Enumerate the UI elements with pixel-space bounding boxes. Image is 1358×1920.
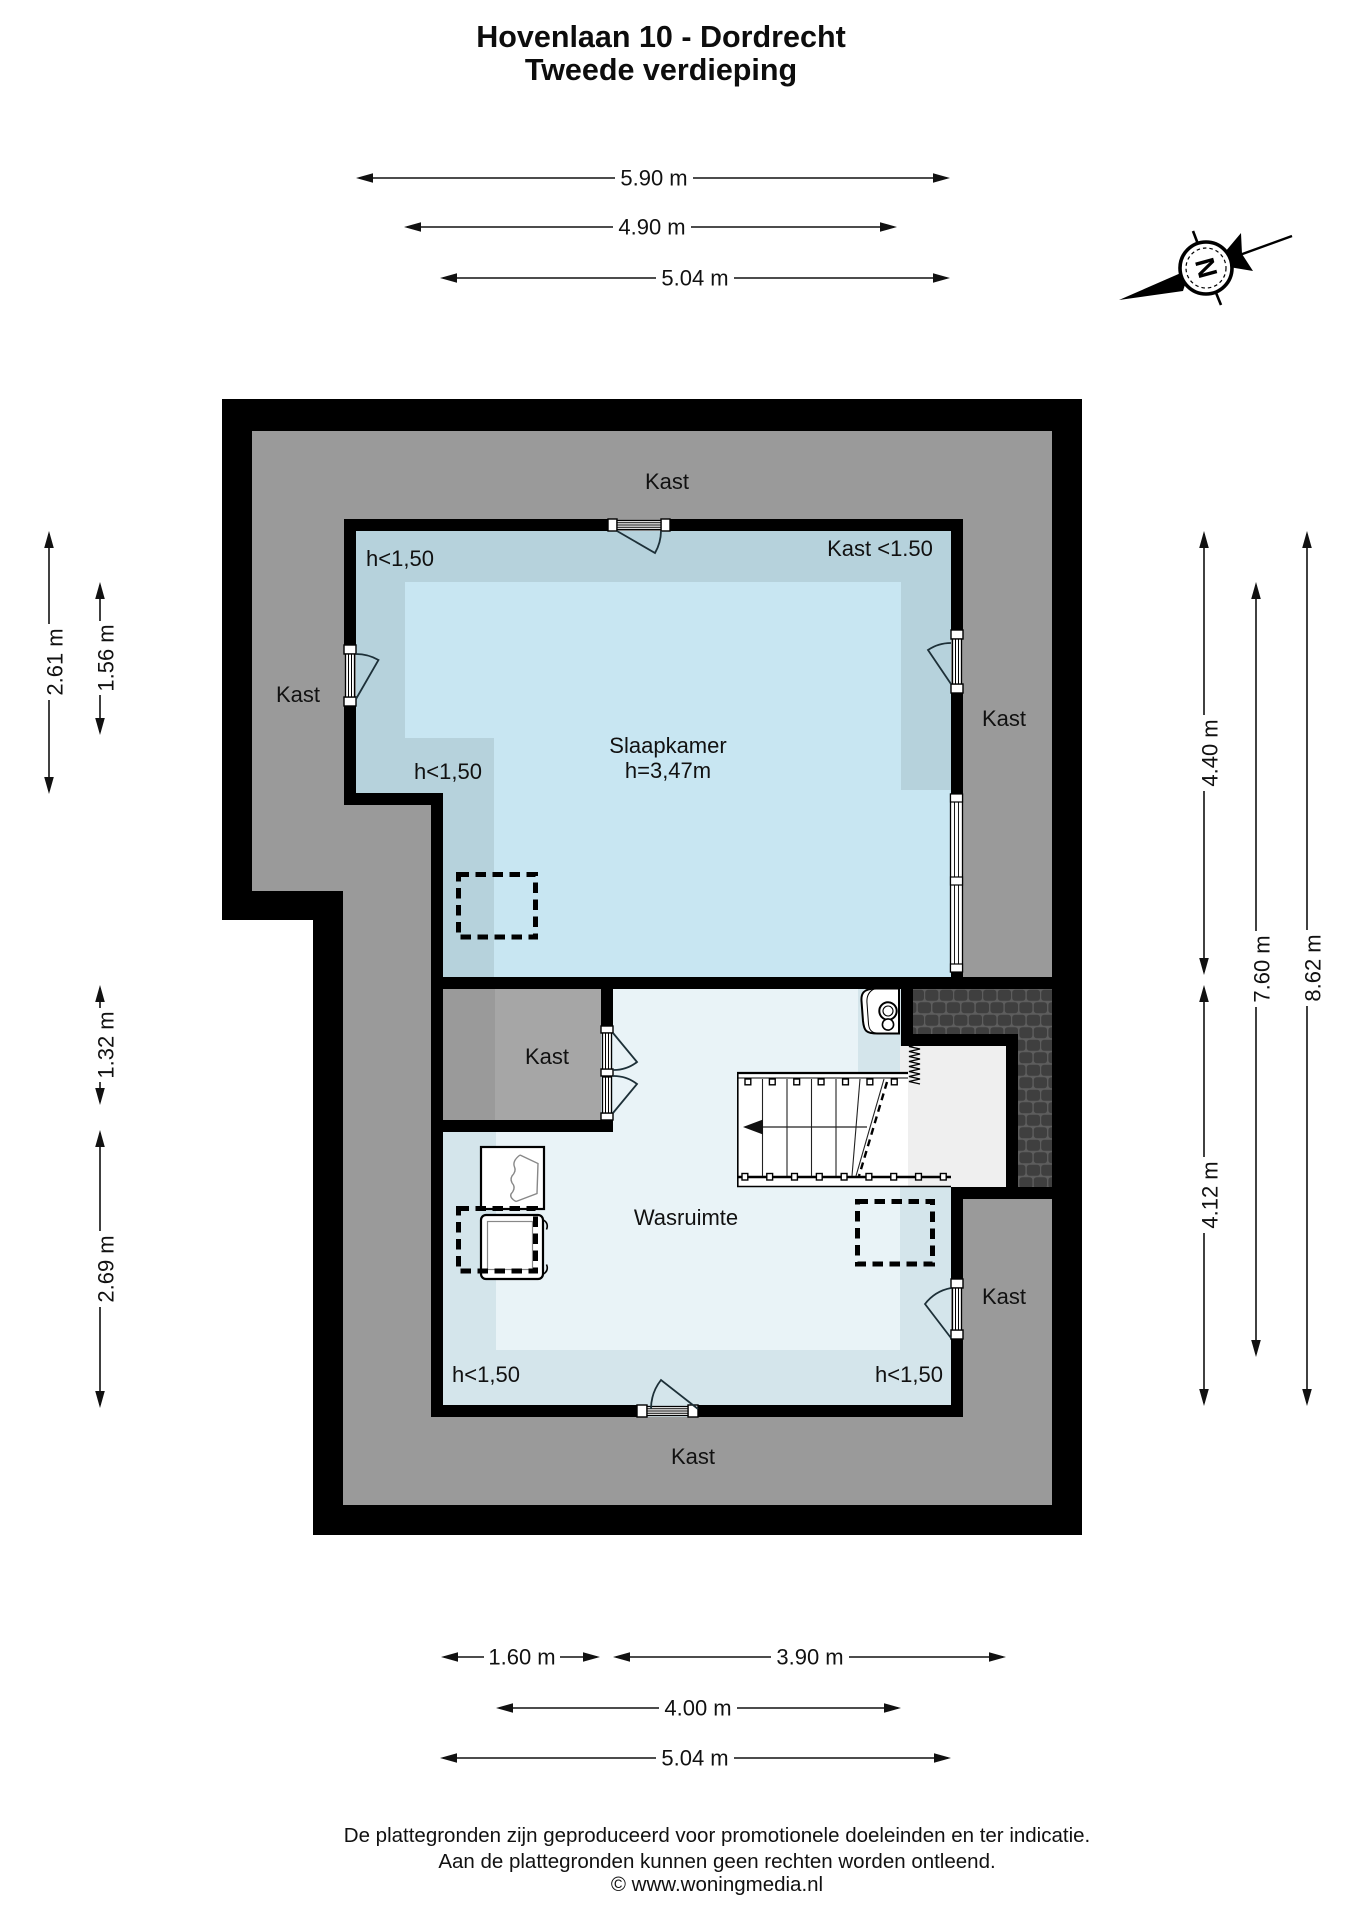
svg-text:Kast <1.50: Kast <1.50 [827, 536, 933, 561]
svg-text:h=3,47m: h=3,47m [625, 758, 711, 783]
svg-text:7.60 m: 7.60 m [1249, 935, 1274, 1002]
svg-text:1.60 m: 1.60 m [488, 1645, 555, 1670]
svg-text:1.32 m: 1.32 m [93, 1011, 118, 1078]
svg-text:2.69 m: 2.69 m [93, 1235, 118, 1302]
svg-text:4.12 m: 4.12 m [1197, 1161, 1222, 1228]
svg-text:4.40 m: 4.40 m [1197, 719, 1222, 786]
svg-text:Kast: Kast [671, 1444, 715, 1469]
svg-text:5.90 m: 5.90 m [620, 166, 687, 191]
svg-text:Slaapkamer: Slaapkamer [609, 733, 726, 758]
svg-text:3.90 m: 3.90 m [776, 1645, 843, 1670]
svg-text:Kast: Kast [982, 706, 1026, 731]
svg-text:Kast: Kast [525, 1044, 569, 1069]
svg-text:Kast: Kast [276, 682, 320, 707]
svg-text:© www.woningmedia.nl: © www.woningmedia.nl [611, 1873, 823, 1896]
svg-text:2.61 m: 2.61 m [42, 628, 67, 695]
svg-text:4.90 m: 4.90 m [618, 215, 685, 240]
svg-text:1.56 m: 1.56 m [93, 624, 118, 691]
svg-text:De plattegronden zijn geproduc: De plattegronden zijn geproduceerd voor … [344, 1824, 1090, 1847]
svg-text:Wasruimte: Wasruimte [634, 1205, 738, 1230]
svg-text:Kast: Kast [645, 469, 689, 494]
svg-text:4.00 m: 4.00 m [664, 1696, 731, 1721]
svg-text:h<1,50: h<1,50 [414, 759, 482, 784]
svg-text:5.04 m: 5.04 m [661, 1746, 728, 1771]
svg-text:Tweede verdieping: Tweede verdieping [525, 53, 797, 87]
svg-text:Aan de plattegronden kunnen ge: Aan de plattegronden kunnen geen rechten… [438, 1850, 995, 1873]
svg-text:h<1,50: h<1,50 [366, 546, 434, 571]
svg-text:5.04 m: 5.04 m [661, 266, 728, 291]
svg-text:8.62 m: 8.62 m [1300, 934, 1325, 1001]
svg-text:h<1,50: h<1,50 [452, 1362, 520, 1387]
svg-text:Kast: Kast [982, 1284, 1026, 1309]
svg-text:Hovenlaan 10 - Dordrecht: Hovenlaan 10 - Dordrecht [476, 20, 846, 54]
svg-text:h<1,50: h<1,50 [875, 1362, 943, 1387]
